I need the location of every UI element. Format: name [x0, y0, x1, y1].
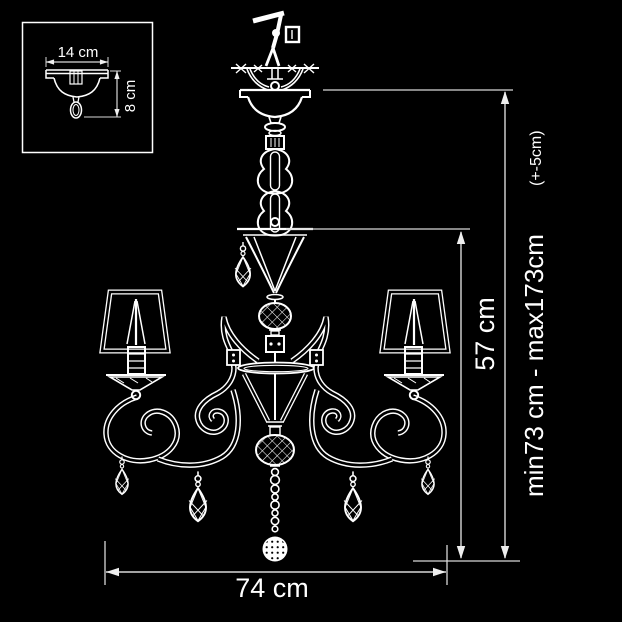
chain-link — [258, 149, 292, 194]
crystal-drop — [421, 457, 435, 495]
arrow-up-icon — [501, 91, 509, 104]
crystal-drop — [235, 242, 251, 287]
crystal-drop — [189, 471, 207, 521]
hanging-height-dimension-label: min73 cm - max173cm — [519, 234, 549, 497]
ceiling-hook — [231, 13, 319, 90]
junction-box — [266, 336, 284, 352]
right-shade-assembly — [382, 292, 448, 399]
chain — [258, 136, 292, 236]
inset-width-label: 14 cm — [58, 44, 99, 61]
lower-stem — [244, 374, 306, 562]
inset-box: 14 cm 8 cm — [23, 23, 153, 153]
body-height-dimension-label: 57 cm — [470, 297, 500, 371]
diagram-stage: 14 cm 8 cm — [0, 0, 622, 622]
chandelier-drawing — [102, 13, 448, 562]
arrow-left-icon — [106, 568, 119, 576]
crystal-drop — [115, 457, 129, 495]
arrow-right-icon — [433, 568, 446, 576]
arrow-up-icon — [457, 231, 465, 244]
width-dimension-label: 74 cm — [235, 573, 309, 603]
chandelier-dimension-diagram: 14 cm 8 cm — [0, 0, 622, 622]
left-shade-assembly — [102, 292, 168, 399]
arrow-down-icon — [457, 546, 465, 559]
arm-cuff — [227, 350, 240, 365]
crystal-drop — [344, 471, 362, 521]
bead-stem — [271, 469, 280, 532]
inset-height-label: 8 cm — [122, 80, 139, 113]
hanging-height-tolerance-label: (+-5cm) — [528, 130, 545, 186]
arm-cuff — [310, 350, 323, 365]
left-arm — [106, 317, 258, 465]
dimension-hanging-height: min73 cm - max173cm (+-5cm) — [323, 90, 549, 561]
canopy — [240, 90, 310, 136]
right-arm — [292, 317, 444, 465]
cone — [246, 237, 304, 293]
arrow-down-icon — [501, 546, 509, 559]
